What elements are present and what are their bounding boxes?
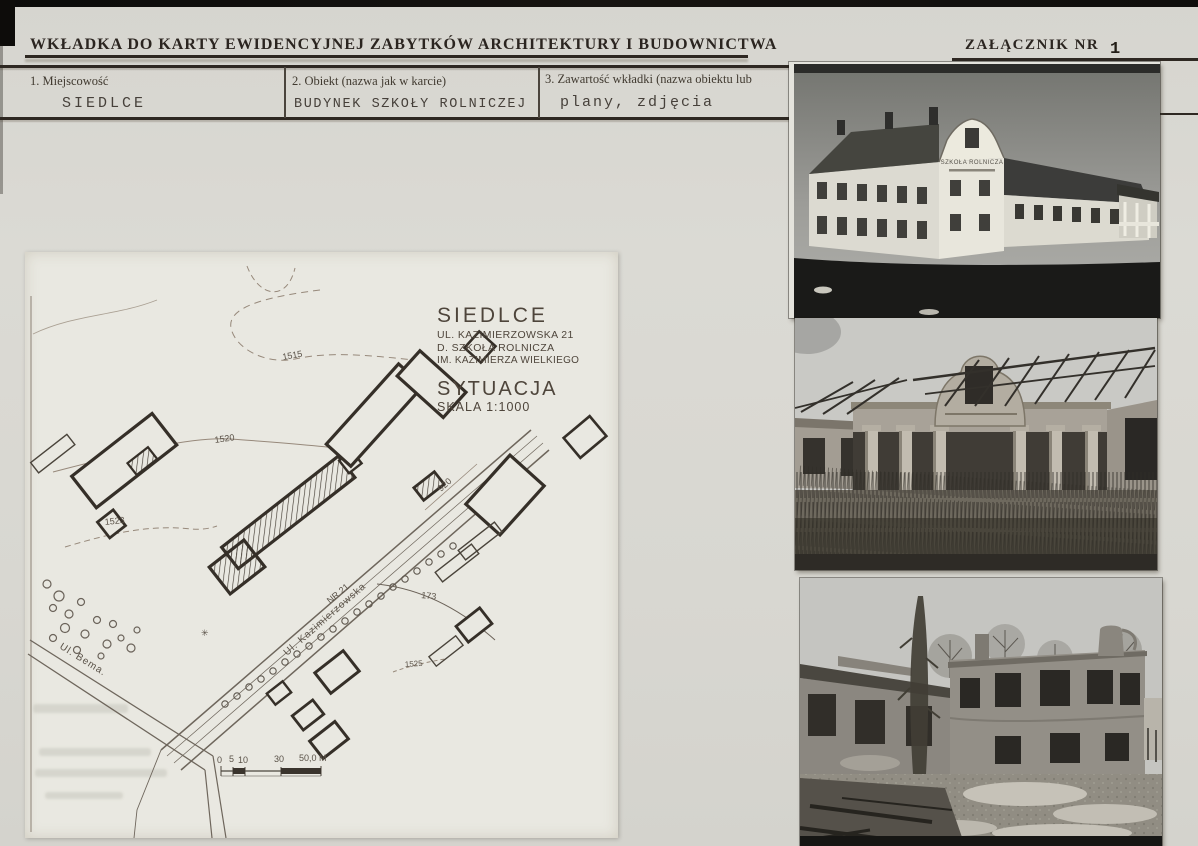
scale-tick-0: 0 (217, 755, 222, 765)
field-miejscowosc-label: 1. Miejscowość (30, 74, 108, 89)
field-obiekt-label: 2. Obiekt (nazwa jak w karcie) (292, 74, 446, 89)
attachment-label: ZAŁĄCZNIK NR (965, 37, 1099, 54)
photo3-bottom-band (800, 836, 1162, 846)
far-right-building (564, 416, 607, 458)
form-bottom-rule (0, 117, 792, 120)
header-underline (25, 55, 748, 58)
scale-bar: 0 5 10 30 50,0 M (217, 753, 327, 776)
photo-ruined-courtyard-image (800, 578, 1162, 846)
tree-symbol: ✳ (201, 628, 209, 638)
site-plan-drawing: ✳ NR 21 Ul. Kazimierzowska Ul. Bema. 920… (25, 252, 618, 838)
photo1-light-spot-2 (919, 309, 939, 315)
form-bottom-rule-right (1157, 113, 1198, 115)
photo1-light-spot (814, 287, 832, 294)
tree-cluster (43, 580, 140, 659)
contour-1520-label: 1520 (214, 432, 235, 445)
scanned-record-card: WKŁADKA DO KARTY EWIDENCYJNEJ ZABYTKÓW A… (0, 0, 1198, 846)
field-miejscowosc-value: SIEDLCE (62, 95, 146, 112)
photo3-right-wall (1144, 698, 1162, 760)
scale-tick-10: 10 (238, 755, 248, 765)
photo3-ground (800, 774, 1162, 846)
title-address: UL. KAZIMIERZOWSKA 21 (437, 329, 574, 341)
photo1-main-block: SZKOŁA ROLNICZA (809, 107, 1004, 259)
title-city: SIEDLCE (437, 304, 548, 327)
contour-1525-label: 1525 (405, 659, 424, 669)
attachment-underline (952, 58, 1198, 61)
photo-ruined-courtyard (800, 578, 1162, 846)
plan-faint-curve (33, 300, 157, 334)
scale-tick-5: 5 (229, 754, 234, 764)
title-drawing-type: SYTUACJA (437, 378, 557, 400)
form-divider-2 (538, 67, 540, 118)
photo1-gable-sign: SZKOŁA ROLNICZA (941, 160, 1004, 166)
curve-173-label: 173 (421, 590, 437, 602)
scale-end-label: 50,0 M (299, 753, 327, 763)
field-zawartosc-label: 3. Zawartość wkładki (nazwa obiektu lub (545, 72, 788, 87)
photo-ruined-colonnade (795, 318, 1157, 570)
field-obiekt-value: BUDYNEK SZKOŁY ROLNICZEJ (294, 97, 527, 112)
attachment-number: 1 (1110, 40, 1120, 59)
photo1-lawn (794, 258, 1160, 318)
site-plan-sheet: ✳ NR 21 Ul. Kazimierzowska Ul. Bema. 920… (25, 252, 618, 838)
form-top-rule (0, 65, 792, 68)
photo-school-historic-image: SZKOŁA ROLNICZA (789, 62, 1160, 318)
form-divider-1 (284, 67, 286, 118)
scan-edge-corner (0, 0, 15, 46)
main-school-building-hatched (204, 448, 375, 594)
title-former-name: D. SZKOŁA ROLNICZA (437, 342, 554, 354)
building-across-road (466, 455, 544, 535)
contour-1515-label: 1515 (282, 349, 303, 362)
photo1-top-band (794, 64, 1160, 73)
field-zawartosc-value: plany, zdjęcia (560, 94, 714, 111)
contour-1523-label: 1523 (104, 515, 125, 527)
title-patron: IM. KAZIMIERZA WIELKIEGO (437, 355, 579, 366)
plan-title-block: SIEDLCE UL. KAZIMIERZOWSKA 21 D. SZKOŁA … (437, 304, 579, 414)
photo2-weeds (795, 465, 1157, 570)
title-scale: SKALA 1:1000 (437, 400, 530, 414)
photo-ruined-colonnade-image (795, 318, 1157, 570)
street-kazimierzowska-label: Ul. Kazimierzowska (282, 581, 369, 658)
photo-school-historic: SZKOŁA ROLNICZA (789, 62, 1160, 318)
scale-tick-30: 30 (274, 754, 284, 764)
scan-edge-top (0, 0, 1198, 7)
page-title: WKŁADKA DO KARTY EWIDENCYJNEJ ZABYTKÓW A… (30, 36, 777, 54)
